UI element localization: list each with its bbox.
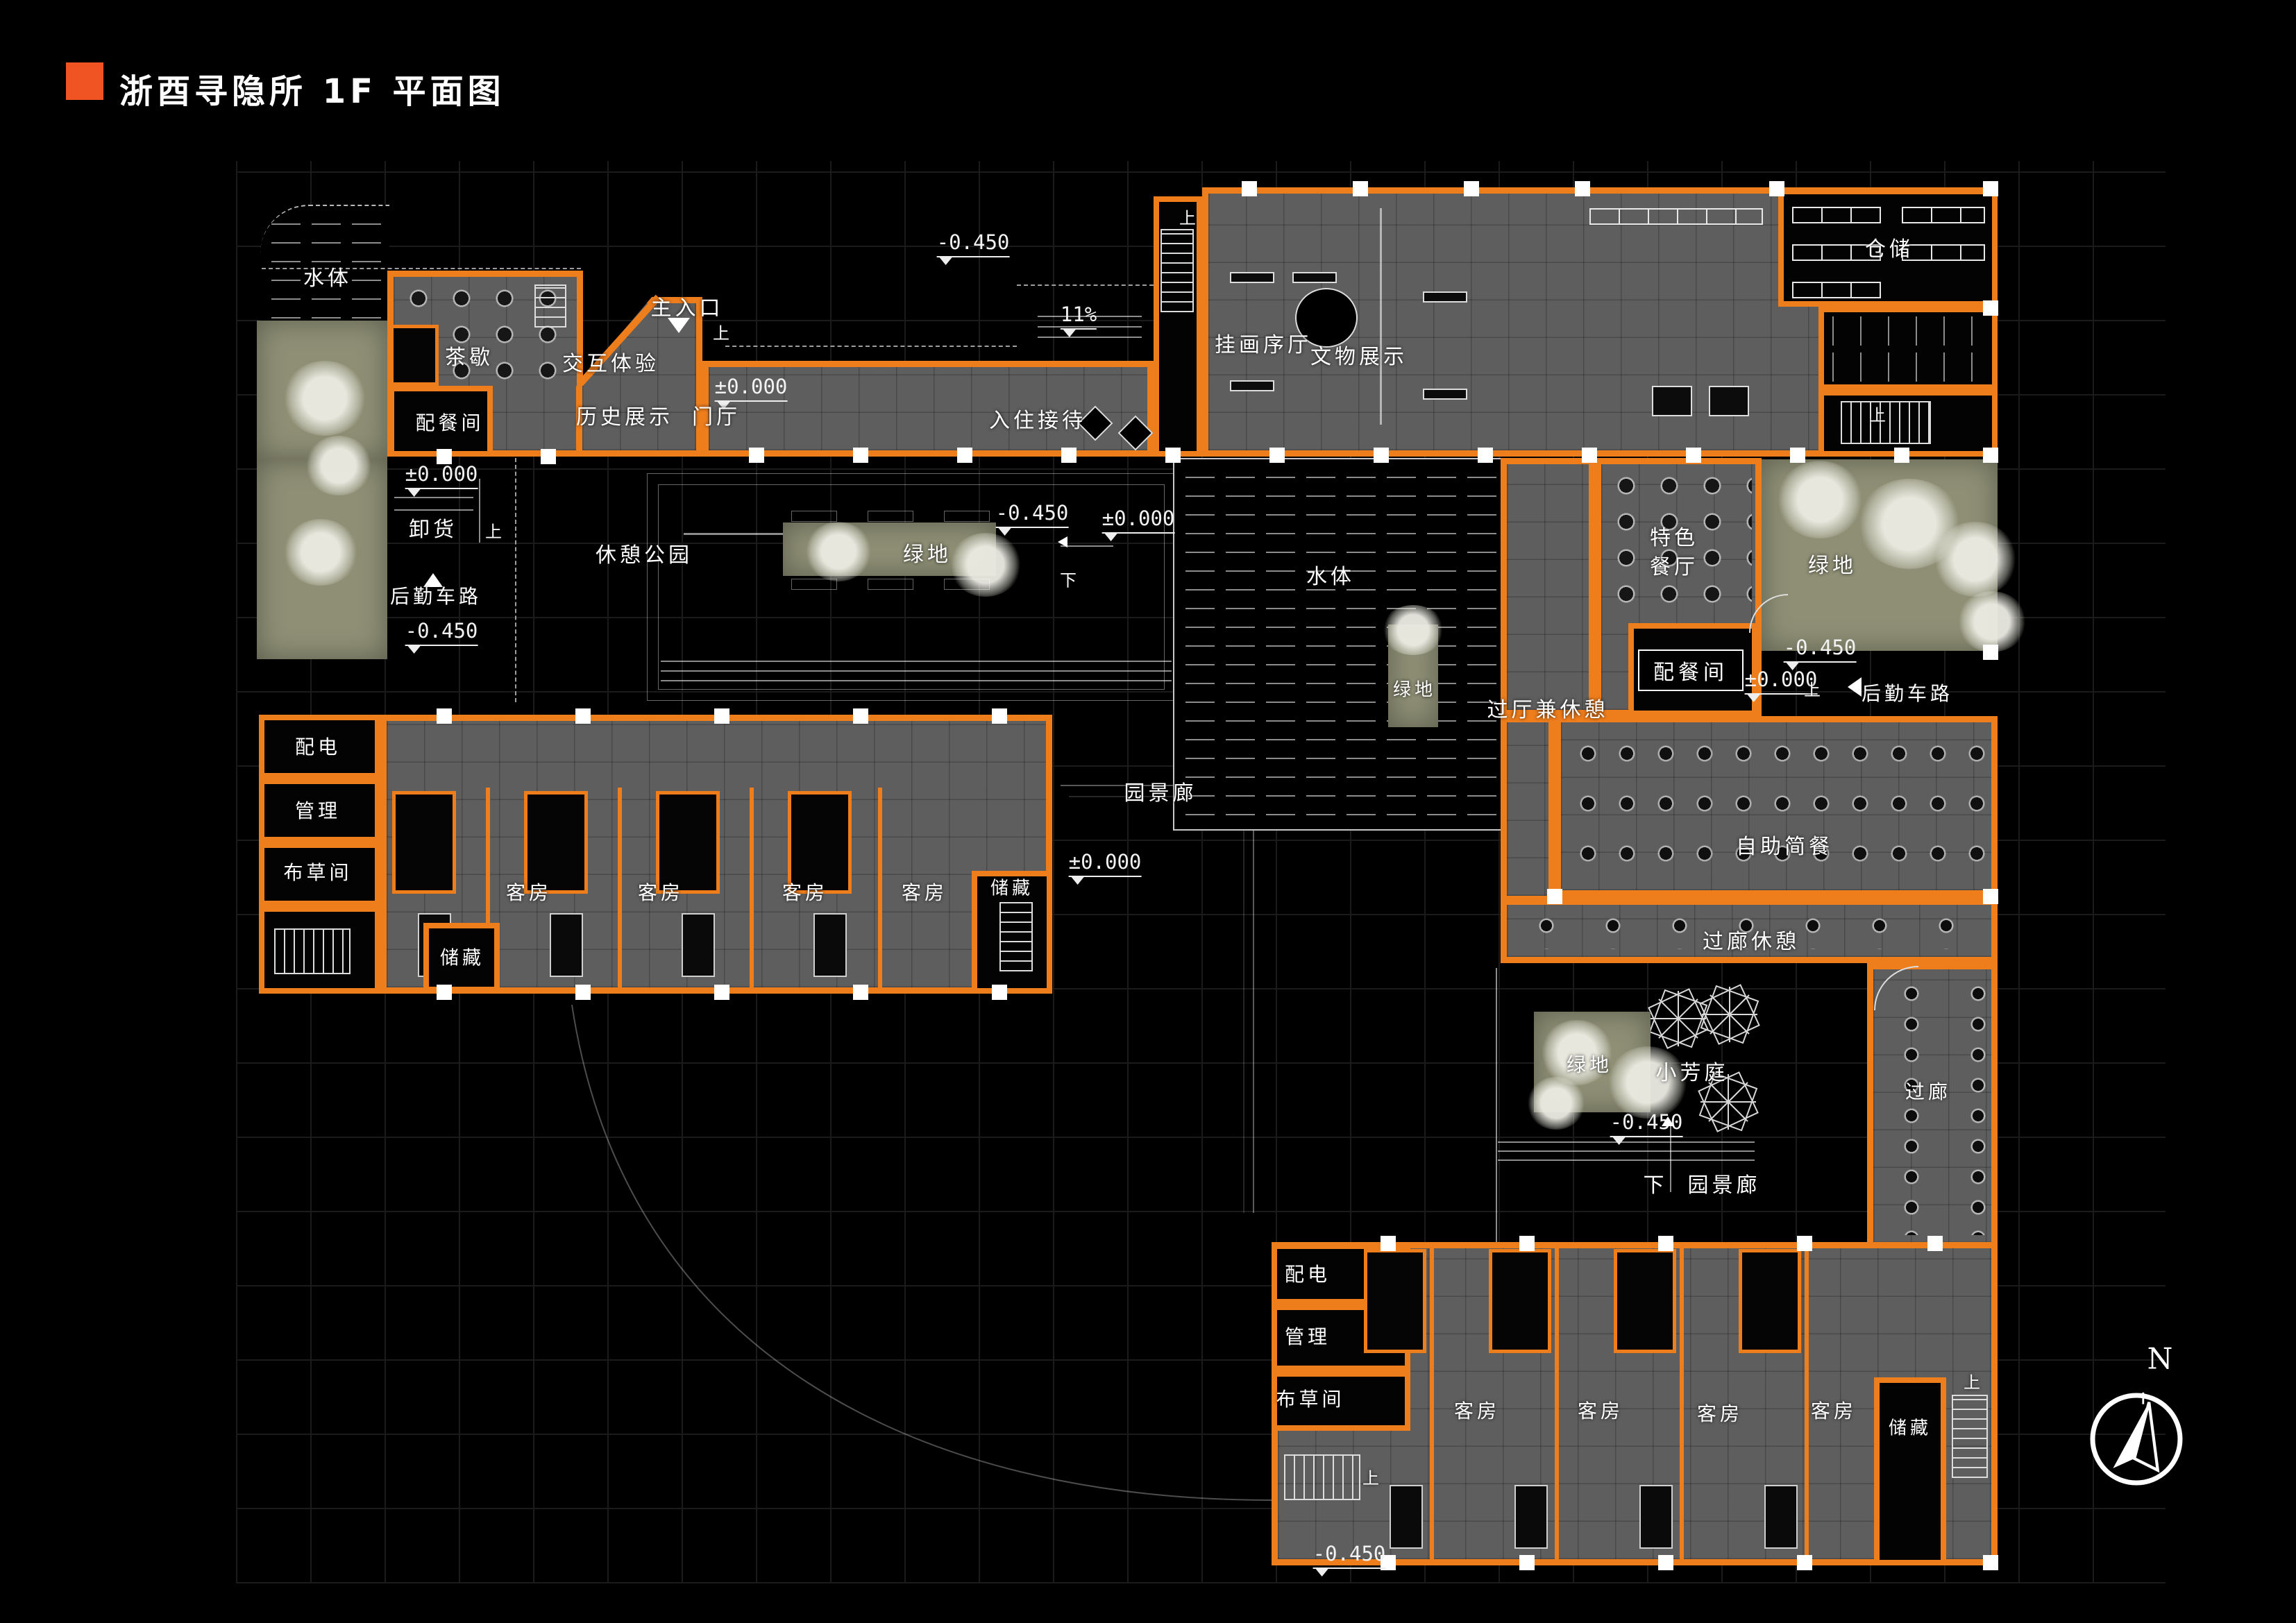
label-green-court: 绿地 xyxy=(1567,1050,1612,1078)
label-history: 历史展示 xyxy=(576,400,673,430)
label-entry-stair-up: 上 xyxy=(1179,205,1197,229)
column-marker xyxy=(541,449,556,464)
column-marker xyxy=(1242,181,1257,196)
wc-stalls xyxy=(1832,316,1985,346)
water-body-central xyxy=(1173,458,1502,831)
label-pantry-east: 配餐间 xyxy=(1638,649,1744,691)
bed xyxy=(1639,1485,1673,1549)
tree-blob xyxy=(1381,605,1445,655)
column-marker xyxy=(1983,181,1998,196)
column-marker xyxy=(1686,448,1701,463)
column-marker xyxy=(957,448,972,463)
bed xyxy=(682,913,715,977)
label-guestroom-s2: 客房 xyxy=(1578,1396,1623,1424)
north-label: N xyxy=(2147,1342,2173,1376)
label-checkin: 入住接待 xyxy=(989,403,1086,434)
column-marker xyxy=(1769,181,1784,196)
column-marker xyxy=(714,708,729,724)
label-small-court: 小芳庭 xyxy=(1656,1055,1729,1086)
planter xyxy=(791,511,837,522)
label-entrance-up: 上 xyxy=(713,320,731,344)
column-marker xyxy=(1547,889,1562,904)
tree-blob xyxy=(1527,1077,1585,1130)
column-marker xyxy=(1061,448,1077,463)
column-marker xyxy=(1797,1555,1812,1570)
tree-blob xyxy=(283,361,366,436)
column-marker xyxy=(1983,448,1998,463)
court-arrow-head xyxy=(1662,1110,1674,1126)
column-marker xyxy=(1894,448,1909,463)
artifact-table xyxy=(1709,386,1749,416)
warehouse-shelf xyxy=(1902,244,1985,261)
planter xyxy=(944,511,990,522)
courtyard-step-line xyxy=(1498,1159,1755,1161)
unloading-arrow-line xyxy=(479,479,480,543)
column-marker xyxy=(1478,448,1493,463)
column-marker xyxy=(1927,1236,1943,1251)
column-marker xyxy=(1464,181,1479,196)
label-down-garden-dir: 下 xyxy=(1643,1173,1667,1198)
tea-stair xyxy=(534,284,566,328)
level-zero-west: ±0.000 xyxy=(405,462,478,486)
park-step-line xyxy=(661,680,1172,681)
bed xyxy=(1764,1485,1798,1549)
room-divider xyxy=(878,788,882,990)
label-service-road-west: 后勤车路 xyxy=(390,581,482,609)
down-arrow-head xyxy=(1052,536,1067,547)
column-marker xyxy=(1797,1236,1812,1251)
label-east-up: 上 xyxy=(1804,677,1822,701)
ramp-slope: 11% xyxy=(1061,303,1097,326)
label-artifact: 文物展示 xyxy=(1310,339,1408,370)
entrance-porch-edge xyxy=(725,346,1017,347)
label-service-road-east: 后勤车路 xyxy=(1862,679,1953,706)
column-marker xyxy=(1983,645,1998,660)
north-compass-icon xyxy=(2088,1391,2185,1488)
passage-planters xyxy=(1878,978,1986,1235)
courtyard-step-line xyxy=(1498,1141,1755,1143)
south-wing-stair xyxy=(1952,1395,1988,1478)
room-divider xyxy=(1430,1248,1434,1560)
bed xyxy=(813,913,847,977)
courtyard-edge xyxy=(1496,968,1497,1251)
column-marker xyxy=(853,708,868,724)
label-south-east-stair-up: 上 xyxy=(1964,1369,1982,1393)
level-minus-west: -0.450 xyxy=(405,619,478,643)
column-marker xyxy=(1519,1555,1535,1570)
label-pantry-west: 配餐间 xyxy=(415,408,484,436)
planter xyxy=(868,511,913,522)
label-management-south: 管理 xyxy=(1285,1322,1331,1350)
planter xyxy=(868,579,913,590)
level-zero-mid: ±0.000 xyxy=(1102,507,1175,530)
storage-room-south xyxy=(1874,1377,1946,1565)
tree-blob xyxy=(1957,591,2027,652)
column-marker xyxy=(575,708,591,724)
label-power-west: 配电 xyxy=(295,732,341,760)
buffet-tables xyxy=(1569,729,1985,884)
tree-blob xyxy=(1934,522,2017,597)
service-road-east-arrow xyxy=(1838,677,1862,697)
label-unloading: 卸货 xyxy=(409,512,457,543)
level-minus-east: -0.450 xyxy=(1784,636,1857,659)
artifact-table xyxy=(1652,386,1692,416)
park-step-line xyxy=(661,661,1172,662)
warehouse-shelf xyxy=(1792,207,1881,223)
label-storage-south: 储藏 xyxy=(1889,1414,1932,1440)
glass-partition xyxy=(1380,208,1382,425)
label-linen-west: 布草间 xyxy=(283,858,352,885)
label-warehouse: 仓储 xyxy=(1865,232,1914,262)
display-pedestal xyxy=(1230,380,1274,391)
courtyard-step-line xyxy=(1498,1150,1755,1152)
column-marker xyxy=(437,985,452,1000)
level-minus-entrance: -0.450 xyxy=(937,230,1010,254)
column-marker xyxy=(853,985,868,1000)
park-step-line xyxy=(661,670,1172,672)
south-service-stair xyxy=(1284,1454,1360,1500)
label-buffet: 自助简餐 xyxy=(1736,829,1833,860)
planter xyxy=(944,579,990,590)
bed xyxy=(550,913,583,977)
label-water-central: 水体 xyxy=(1306,559,1355,590)
tree-blob xyxy=(805,522,872,581)
tree-blob xyxy=(283,519,358,586)
west-service-stair xyxy=(274,928,351,974)
column-marker xyxy=(1983,889,1998,904)
ramp-line xyxy=(1038,337,1142,338)
floorplan-canvas: 浙酉寻隐所 1F 平面图 xyxy=(0,0,2296,1623)
service-road-edge xyxy=(515,458,516,702)
label-ne-stair-up: 上 xyxy=(1869,402,1887,426)
tree-blob xyxy=(1777,461,1863,538)
display-pedestal xyxy=(1292,272,1337,283)
column-marker xyxy=(1519,1236,1535,1251)
label-passage: 过廊 xyxy=(1905,1077,1951,1105)
column-marker xyxy=(437,708,452,724)
column-marker xyxy=(1269,448,1285,463)
label-green-park: 绿地 xyxy=(903,537,952,568)
label-guestroom-w2: 客房 xyxy=(638,878,684,906)
level-zero-westwing: ±0.000 xyxy=(1069,850,1142,874)
column-marker xyxy=(1983,300,1998,316)
label-guestroom-s3: 客房 xyxy=(1697,1399,1743,1427)
label-restaurant-2: 餐厅 xyxy=(1650,550,1698,580)
room-divider xyxy=(750,788,754,990)
entry-stair xyxy=(1160,229,1194,312)
column-marker xyxy=(714,985,729,1000)
warehouse-shelf xyxy=(1902,207,1985,223)
label-down-garden-name: 园景廊 xyxy=(1688,1173,1761,1198)
label-interactive: 交互体验 xyxy=(562,346,659,377)
road-line xyxy=(394,497,473,498)
passage-rest-corridor-upper xyxy=(1501,458,1595,716)
tree-blob xyxy=(305,436,372,495)
label-guestroom-s4: 客房 xyxy=(1811,1396,1857,1424)
bed xyxy=(1514,1485,1548,1549)
column-marker xyxy=(1790,448,1805,463)
bathroom-pod xyxy=(392,791,456,894)
column-marker xyxy=(1374,448,1389,463)
room-divider xyxy=(1805,1248,1809,1560)
label-linen-south: 布草间 xyxy=(1276,1384,1344,1412)
entrance-arrow-icon xyxy=(668,318,690,344)
warehouse-shelf xyxy=(1792,282,1881,298)
level-minus-mid: -0.450 xyxy=(996,501,1069,525)
column-marker xyxy=(749,448,764,463)
label-down-mid: 下 xyxy=(1060,567,1078,591)
column-marker xyxy=(853,448,868,463)
label-foyer: 门厅 xyxy=(692,400,741,430)
display-pedestal xyxy=(1423,389,1467,400)
column-marker xyxy=(1353,181,1368,196)
label-south-stair-up: 上 xyxy=(1362,1465,1381,1489)
down-arrow-line xyxy=(1061,545,1113,547)
label-water-nw: 水体 xyxy=(303,261,352,291)
tea-counter xyxy=(390,325,439,386)
label-rest-park: 休憩公园 xyxy=(596,538,693,568)
column-marker xyxy=(1582,448,1597,463)
label-restaurant-1: 特色 xyxy=(1650,520,1698,551)
label-power-south: 配电 xyxy=(1285,1259,1331,1287)
label-down-garden: 下 园景廊 xyxy=(1643,1168,1760,1198)
column-marker xyxy=(1658,1555,1673,1570)
level-zero-foyer: ±0.000 xyxy=(715,375,788,398)
room-divider xyxy=(618,788,622,990)
column-marker xyxy=(575,985,591,1000)
column-marker xyxy=(992,985,1007,1000)
ramp-edge xyxy=(1017,284,1154,286)
label-storage-west: 储藏 xyxy=(440,943,484,970)
label-green-east: 绿地 xyxy=(1808,548,1857,579)
bathroom-pod xyxy=(1489,1249,1551,1353)
planter xyxy=(791,579,837,590)
label-management-west: 管理 xyxy=(295,796,341,824)
room-divider xyxy=(1555,1248,1559,1560)
display-cabinet xyxy=(1589,208,1763,225)
label-corridor-rest: 过廊休憩 xyxy=(1703,924,1800,955)
bathroom-pod xyxy=(1614,1249,1676,1353)
column-marker xyxy=(1658,1236,1673,1251)
column-marker xyxy=(1983,1555,1998,1570)
label-main-entrance: 主入口 xyxy=(651,291,724,321)
label-guestroom-w4: 客房 xyxy=(902,878,947,906)
bathroom-pod xyxy=(1364,1249,1426,1353)
passage-rest-corridor-lower xyxy=(1501,716,1555,902)
level-minus-south: -0.450 xyxy=(1313,1542,1386,1565)
west-wing-stair xyxy=(999,902,1033,971)
room-divider xyxy=(1680,1248,1684,1560)
label-guestroom-s1: 客房 xyxy=(1454,1396,1500,1424)
bed xyxy=(1390,1485,1423,1549)
wc-stalls xyxy=(1832,352,1985,382)
label-guestroom-w3: 客房 xyxy=(782,878,828,906)
column-marker xyxy=(1575,181,1590,196)
label-guestroom-w1: 客房 xyxy=(506,878,552,906)
label-green-island: 绿地 xyxy=(1393,676,1436,702)
label-hall-rest: 过厅兼休憩 xyxy=(1487,692,1609,723)
column-marker xyxy=(1381,1236,1396,1251)
display-pedestal xyxy=(1423,291,1467,303)
display-pedestal xyxy=(1230,272,1274,283)
column-marker xyxy=(992,708,1007,724)
road-line xyxy=(394,509,473,511)
label-tea-break: 茶歇 xyxy=(445,340,493,371)
label-garden-gallery: 园景廊 xyxy=(1124,776,1197,806)
label-storage-west-wing: 储藏 xyxy=(990,874,1033,900)
label-painting-hall: 挂画序厅 xyxy=(1215,328,1312,358)
label-unloading-up: 上 xyxy=(485,518,503,543)
bathroom-pod xyxy=(1739,1249,1801,1353)
column-marker xyxy=(1165,448,1181,463)
